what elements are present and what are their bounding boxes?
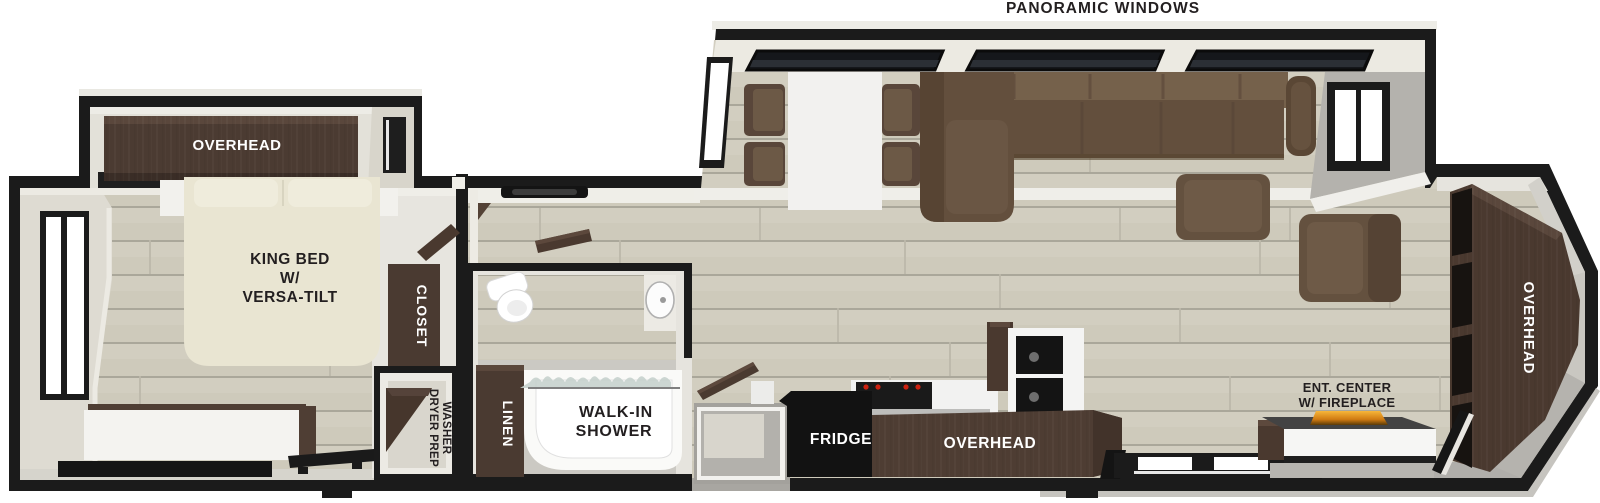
svg-text:LINEN: LINEN bbox=[500, 401, 516, 448]
svg-text:OVERHEAD: OVERHEAD bbox=[944, 435, 1037, 452]
svg-text:W/: W/ bbox=[280, 270, 300, 287]
svg-text:SHOWER: SHOWER bbox=[576, 423, 653, 440]
svg-text:W/ FIREPLACE: W/ FIREPLACE bbox=[1299, 395, 1396, 410]
svg-text:VERSA-TILT: VERSA-TILT bbox=[242, 289, 337, 306]
svg-text:ENT. CENTER: ENT. CENTER bbox=[1303, 380, 1392, 395]
svg-text:WALK-IN: WALK-IN bbox=[579, 404, 653, 421]
svg-text:OVERHEAD: OVERHEAD bbox=[192, 137, 281, 154]
svg-text:PANORAMIC WINDOWS: PANORAMIC WINDOWS bbox=[1006, 0, 1200, 17]
svg-text:DRYER PREP: DRYER PREP bbox=[427, 389, 439, 467]
svg-text:WASHER: WASHER bbox=[440, 402, 452, 455]
svg-text:CLOSET: CLOSET bbox=[414, 285, 430, 348]
svg-text:OVERHEAD: OVERHEAD bbox=[1520, 281, 1537, 374]
svg-text:KING BED: KING BED bbox=[250, 251, 330, 268]
svg-text:FRIDGE: FRIDGE bbox=[810, 431, 872, 448]
